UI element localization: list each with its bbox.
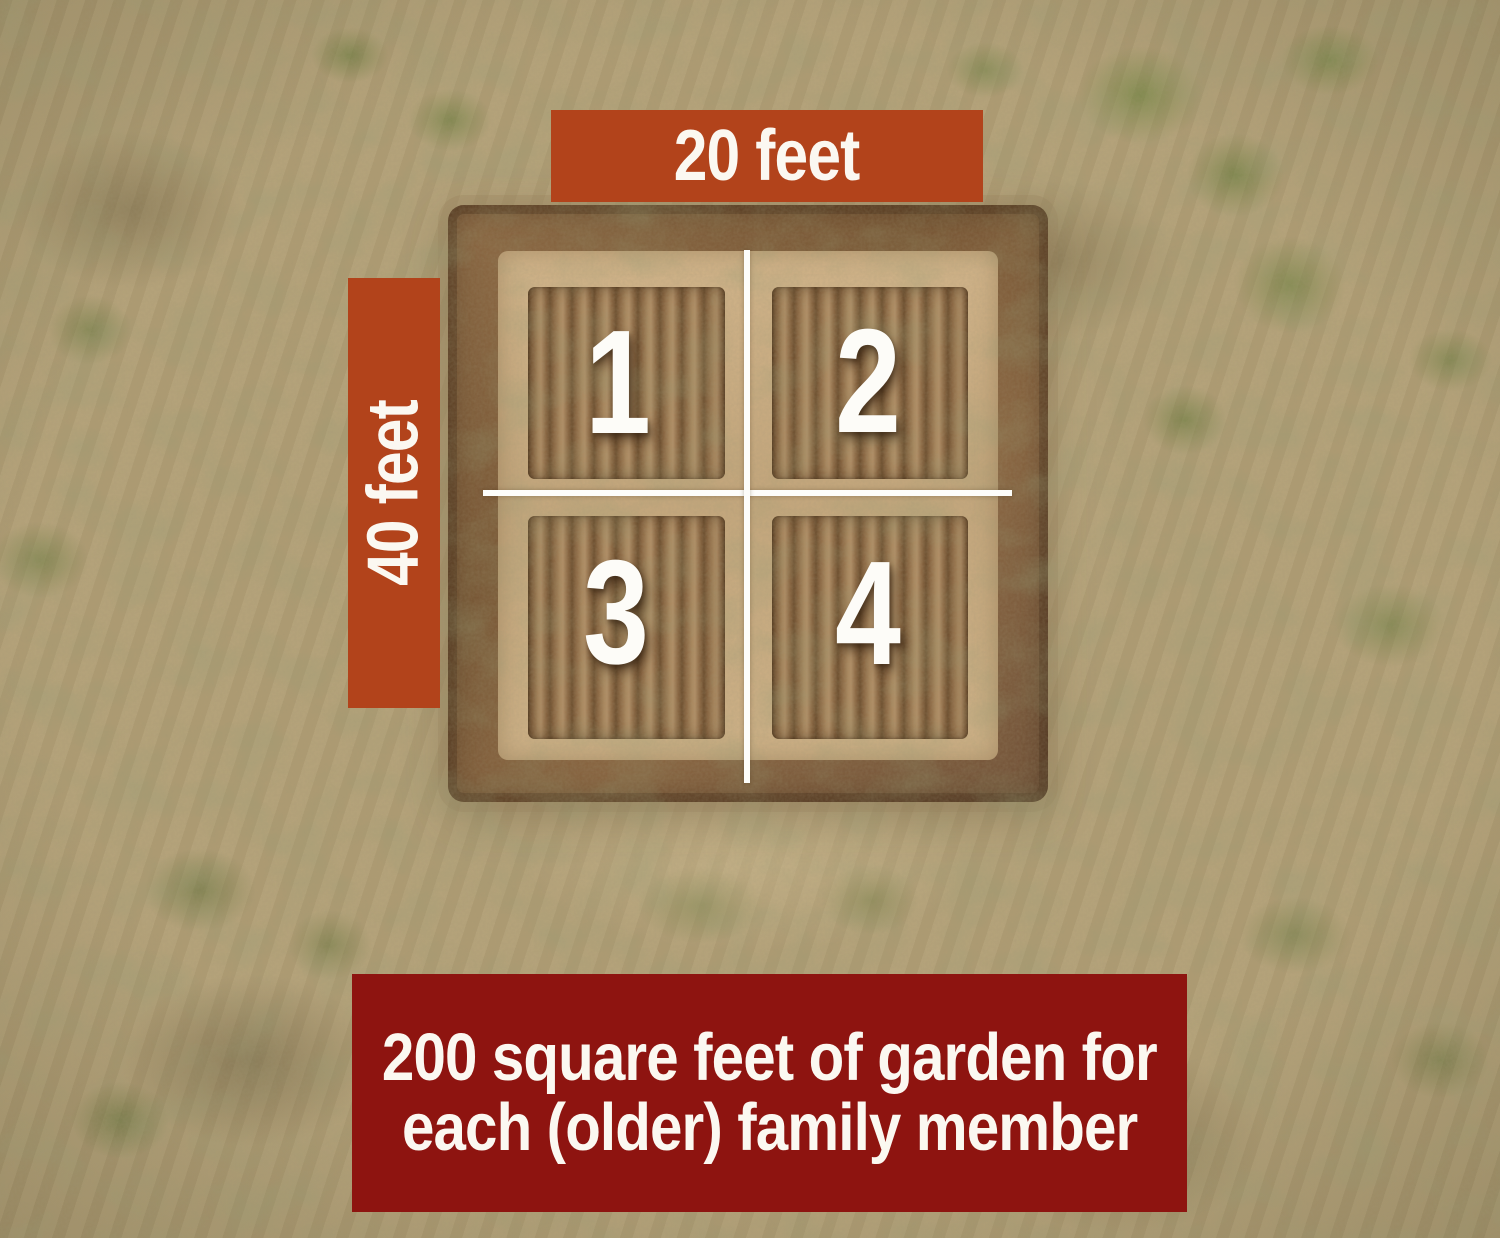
caption-line-2: each (older) family member	[402, 1093, 1137, 1163]
quadrant-number-2: 2	[835, 308, 901, 456]
top-dimension-text: 20 feet	[674, 115, 860, 197]
infographic-canvas: 1 2 3 4 20 feet 40 feet 200 square feet …	[0, 0, 1500, 1238]
caption-banner: 200 square feet of garden for each (olde…	[352, 974, 1187, 1212]
caption-line-1: 200 square feet of garden for	[382, 1023, 1157, 1093]
quadrant-number-4: 4	[835, 540, 901, 688]
divider-vertical-line	[744, 250, 750, 783]
top-dimension-label: 20 feet	[551, 110, 983, 202]
quadrant-number-3: 3	[583, 539, 649, 687]
quadrant-number-1: 1	[585, 309, 651, 457]
left-dimension-label: 40 feet	[348, 278, 440, 708]
left-dimension-text: 40 feet	[353, 400, 435, 586]
